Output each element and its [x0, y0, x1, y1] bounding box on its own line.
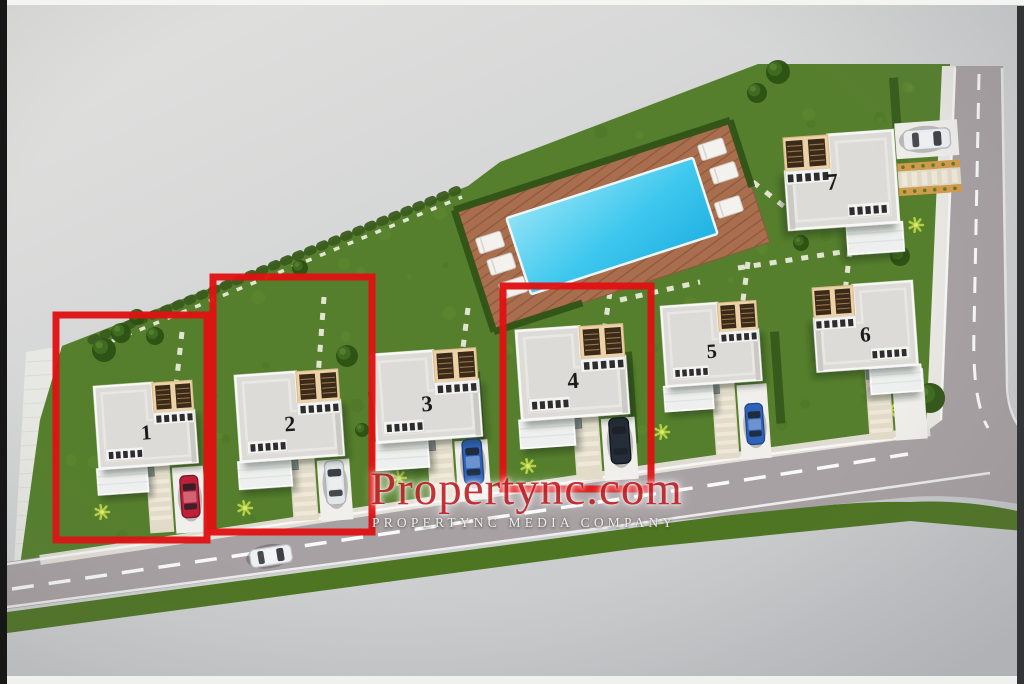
- pergola: [720, 305, 736, 329]
- pergola: [299, 374, 316, 400]
- porch: [664, 383, 714, 412]
- top-border: [0, 0, 1024, 5]
- pergola: [155, 385, 172, 410]
- pergola: [175, 383, 192, 408]
- tree: [92, 338, 116, 362]
- site-plan-image: 1234567 Propertync.com PROPERTYNC MEDIA …: [0, 0, 1024, 684]
- porch: [238, 458, 292, 489]
- pergola: [436, 353, 454, 380]
- villa-number-4: 4: [566, 368, 580, 394]
- pergola: [740, 303, 756, 327]
- site-plan-svg: 1234567: [0, 0, 1024, 684]
- tree: [355, 423, 369, 437]
- villa-number-3: 3: [420, 391, 433, 417]
- tree: [747, 83, 767, 103]
- pergola: [785, 140, 804, 168]
- porch: [846, 222, 904, 255]
- tree: [146, 327, 164, 345]
- tree: [766, 60, 790, 84]
- villa-number-2: 2: [284, 411, 297, 437]
- tree: [793, 235, 809, 251]
- car-windshield: [182, 483, 195, 491]
- car-windshield: [933, 131, 942, 146]
- pergola: [458, 351, 476, 378]
- car-windshield: [612, 426, 627, 435]
- porch: [870, 364, 923, 394]
- left-border: [0, 0, 7, 684]
- pergola: [814, 290, 831, 315]
- porch: [519, 417, 575, 449]
- watermark-subtitle: PROPERTYNC MEDIA COMPANY: [372, 515, 676, 531]
- car-windshield: [327, 469, 341, 477]
- pergola: [808, 138, 827, 166]
- tree: [336, 345, 358, 367]
- pergola: [604, 327, 622, 354]
- villa-number-6: 6: [859, 322, 872, 347]
- porch: [97, 466, 149, 495]
- pergola: [583, 328, 601, 355]
- villa-number-5: 5: [706, 341, 718, 364]
- car-windshield: [465, 447, 479, 455]
- villa-number-7: 7: [825, 169, 839, 196]
- bottom-border: [0, 676, 1024, 684]
- car-windshield: [748, 411, 761, 419]
- villa-number-1: 1: [140, 420, 152, 445]
- pergola: [320, 372, 337, 398]
- pergola: [835, 288, 852, 313]
- right-border: [1017, 6, 1024, 684]
- watermark-title: Propertync.com: [370, 462, 683, 516]
- tree: [111, 323, 131, 343]
